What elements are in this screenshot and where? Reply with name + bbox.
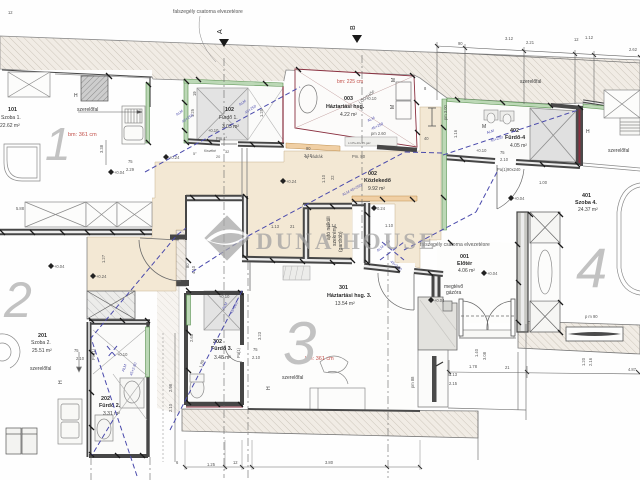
svg-text:2.10: 2.10: [168, 403, 173, 412]
svg-text:1.12: 1.12: [585, 35, 594, 40]
svg-text:Szoba 4.: Szoba 4.: [575, 200, 597, 206]
svg-text:9.92 m²: 9.92 m²: [368, 186, 385, 192]
svg-text:001: 001: [460, 254, 469, 260]
svg-text:2.10: 2.10: [252, 355, 261, 360]
svg-text:90: 90: [306, 146, 311, 151]
svg-text:2.21: 2.21: [526, 40, 535, 45]
svg-text:12: 12: [8, 10, 13, 15]
svg-text:3: 3: [283, 310, 316, 377]
svg-text:75: 75: [74, 348, 79, 353]
svg-text:1.13: 1.13: [449, 372, 458, 377]
svg-text:H: H: [74, 93, 78, 99]
svg-text:2: 2: [3, 272, 32, 328]
svg-text:1.78: 1.78: [469, 364, 478, 369]
svg-text:szerelőfal: szerelőfal: [520, 79, 541, 85]
svg-text:M: M: [391, 78, 397, 82]
svg-text:+0.10: +0.10: [219, 294, 230, 299]
svg-text:Fürdő 2.: Fürdő 2.: [99, 403, 121, 409]
svg-text:p m 90: p m 90: [585, 314, 598, 319]
svg-text:25.51 m²: 25.51 m²: [32, 348, 52, 354]
svg-text:75: 75: [253, 347, 258, 352]
svg-text:1.25: 1.25: [207, 462, 216, 467]
svg-text:4.87: 4.87: [628, 367, 637, 372]
svg-text:24.37 m²: 24.37 m²: [578, 207, 598, 213]
svg-text:22: 22: [330, 175, 335, 180]
svg-text:+0.04: +0.04: [114, 170, 125, 175]
svg-text:falszegély csatorna elvezetésr: falszegély csatorna elvezetésre: [173, 9, 243, 15]
svg-text:3.08: 3.08: [482, 351, 487, 360]
svg-text:3.12: 3.12: [505, 36, 514, 41]
svg-text:H: H: [266, 386, 272, 390]
svg-text:401: 401: [582, 193, 591, 199]
svg-text:75: 75: [128, 159, 133, 164]
svg-text:12: 12: [574, 37, 579, 42]
svg-text:+0.24: +0.24: [96, 274, 107, 279]
svg-text:1.20: 1.20: [581, 357, 586, 366]
svg-text:1.40: 1.40: [474, 348, 479, 357]
svg-text:pm 2.60: pm 2.60: [371, 131, 387, 136]
svg-text:+0.24: +0.24: [286, 179, 297, 184]
svg-text:A: A: [217, 29, 224, 34]
svg-text:101: 101: [8, 107, 17, 113]
svg-text:4.06 m²: 4.06 m²: [458, 268, 475, 274]
svg-text:0.24: 0.24: [377, 206, 386, 211]
svg-text:1.10: 1.10: [385, 223, 394, 228]
svg-text:gázóra: gázóra: [446, 290, 462, 296]
svg-text:5.88: 5.88: [16, 206, 25, 211]
svg-text:+0.04: +0.04: [54, 264, 65, 269]
svg-text:Fürdő 1.: Fürdő 1.: [219, 115, 238, 121]
svg-text:003: 003: [344, 96, 353, 102]
svg-text:+0.04: +0.04: [514, 196, 525, 201]
svg-text:Közlekedő: Közlekedő: [364, 178, 392, 184]
svg-text:75: 75: [500, 150, 505, 155]
svg-text:102: 102: [225, 107, 234, 113]
svg-text:90: 90: [458, 41, 463, 46]
svg-text:M: M: [482, 124, 486, 130]
svg-text:1.00: 1.00: [539, 180, 548, 185]
svg-text:M: M: [390, 105, 396, 109]
svg-text:4.22 m²: 4.22 m²: [340, 112, 357, 118]
svg-text:Fürdő 3.: Fürdő 3.: [211, 346, 233, 352]
svg-text:2.10: 2.10: [500, 157, 509, 162]
svg-text:4: 4: [576, 236, 607, 299]
svg-text:Kisvébé: Kisvébé: [204, 149, 216, 153]
svg-text:Pa(1): Pa(1): [236, 347, 241, 358]
svg-text:+0.10: +0.10: [476, 148, 487, 153]
svg-text:19: 19: [192, 91, 197, 96]
svg-text:2.15: 2.15: [449, 381, 458, 386]
svg-text:3.23: 3.23: [257, 331, 262, 340]
svg-text:301: 301: [339, 285, 348, 291]
svg-text:H: H: [586, 129, 590, 135]
svg-text:3.48 m²: 3.48 m²: [214, 355, 231, 361]
svg-text:13.54 m²: 13.54 m²: [335, 301, 355, 307]
svg-text:Háztartási hsg. 3.: Háztartási hsg. 3.: [327, 293, 372, 299]
svg-text:201: 201: [38, 333, 47, 339]
svg-text:pm 88: pm 88: [410, 376, 415, 388]
svg-text:22.62 m²: 22.62 m²: [0, 123, 20, 129]
svg-text:3.80: 3.80: [325, 460, 334, 465]
svg-text:pm 3.00: pm 3.00: [443, 104, 448, 120]
svg-text:L=25+40+25 gáz: L=25+40+25 gáz: [348, 141, 371, 145]
svg-text:Pm 1°: Pm 1°: [216, 136, 228, 141]
svg-text:Pm. 80: Pm. 80: [352, 154, 366, 159]
svg-text:+0.10: +0.10: [117, 352, 128, 357]
svg-text:+0.04: +0.04: [487, 271, 498, 276]
svg-text:20: 20: [216, 155, 220, 159]
svg-text:B: B: [350, 25, 357, 30]
svg-text:2.62: 2.62: [629, 47, 638, 52]
svg-text:40: 40: [424, 136, 429, 141]
svg-text:21: 21: [505, 365, 510, 370]
svg-text:Szoba 2.: Szoba 2.: [31, 340, 51, 346]
svg-text:Fürdő-4: Fürdő-4: [505, 135, 525, 141]
svg-text:80: 80: [185, 263, 190, 268]
svg-text:1: 1: [45, 118, 71, 170]
svg-text:Háztartási hsg.: Háztartási hsg.: [326, 104, 365, 110]
svg-text:12: 12: [233, 460, 238, 465]
svg-text:+0.04: +0.04: [434, 298, 445, 303]
svg-text:202: 202: [101, 396, 110, 402]
svg-text:szerelőfal: szerelőfal: [608, 148, 629, 154]
svg-text:4.05 m²: 4.05 m²: [510, 143, 527, 149]
svg-text:32: 32: [225, 150, 229, 154]
svg-text:2.10: 2.10: [304, 153, 313, 158]
svg-text:3.31 m²: 3.31 m²: [103, 411, 120, 417]
svg-text:1.16: 1.16: [453, 129, 458, 138]
svg-text:3.38: 3.38: [99, 144, 104, 153]
svg-text:DUNA HOUSE: DUNA HOUSE: [256, 229, 437, 254]
svg-text:H: H: [58, 380, 64, 384]
svg-text:1.27: 1.27: [101, 254, 106, 263]
svg-text:Előtér: Előtér: [457, 261, 473, 267]
svg-text:Szoba 1.: Szoba 1.: [1, 115, 21, 121]
svg-text:1.10: 1.10: [321, 174, 326, 183]
svg-text:2.29: 2.29: [126, 167, 135, 172]
svg-text:5°: 5°: [193, 152, 197, 156]
svg-text:2.98: 2.98: [168, 383, 173, 392]
svg-text:002: 002: [368, 171, 377, 177]
svg-text:szerelőfal: szerelőfal: [30, 366, 51, 372]
svg-text:2.10: 2.10: [76, 356, 85, 361]
svg-text:bm: 225 cm: bm: 225 cm: [337, 79, 363, 85]
svg-text:bm: 361 cm: bm: 361 cm: [68, 132, 97, 138]
svg-text:Pa(1)90x240: Pa(1)90x240: [497, 167, 521, 172]
svg-text:2.16: 2.16: [588, 357, 593, 366]
